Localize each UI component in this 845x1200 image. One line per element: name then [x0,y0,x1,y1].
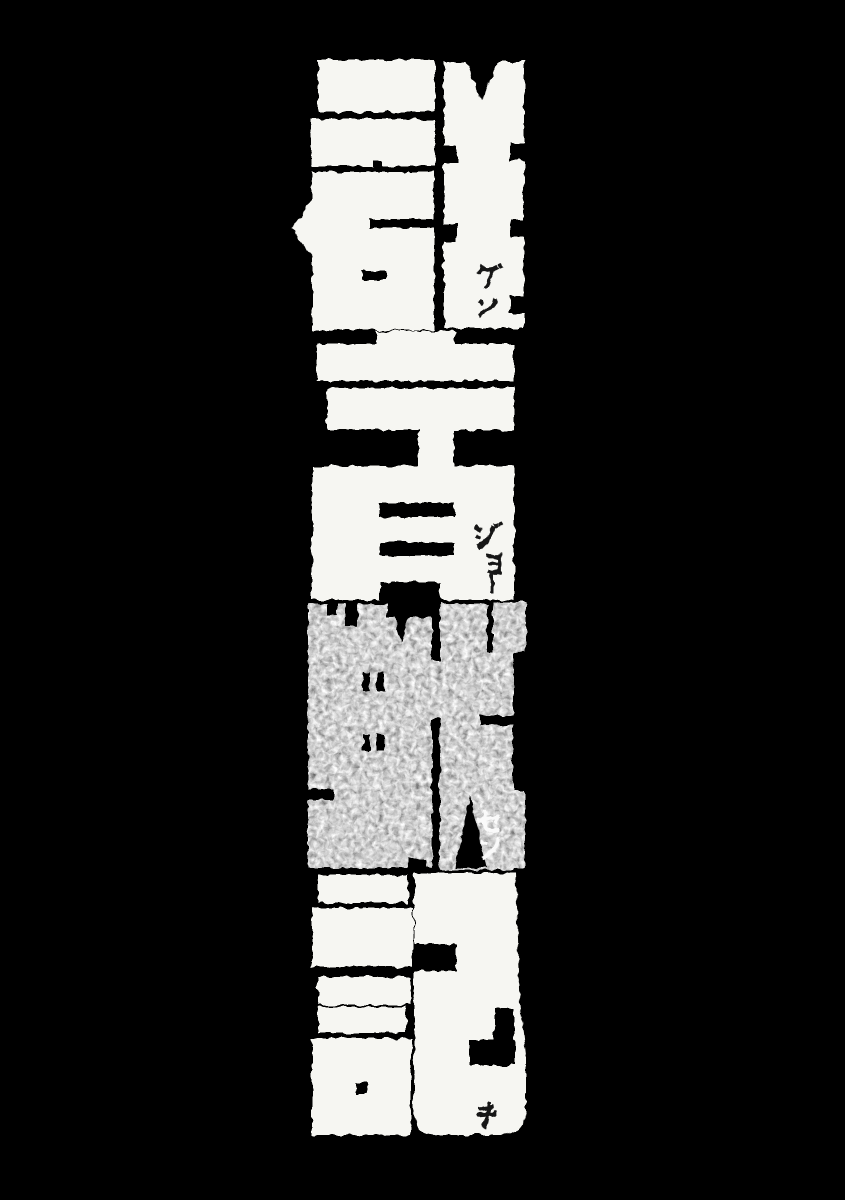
kanji-sen [306,602,528,870]
kanji-gun-strokes [292,60,524,330]
kanji-ki-strokes [312,873,526,1135]
kanji-ki [312,873,526,1135]
kanji-gun [292,60,524,330]
manga-title-page: 群青戦記 グンジョーセンキ [0,0,845,1200]
title-artwork [0,0,845,1200]
